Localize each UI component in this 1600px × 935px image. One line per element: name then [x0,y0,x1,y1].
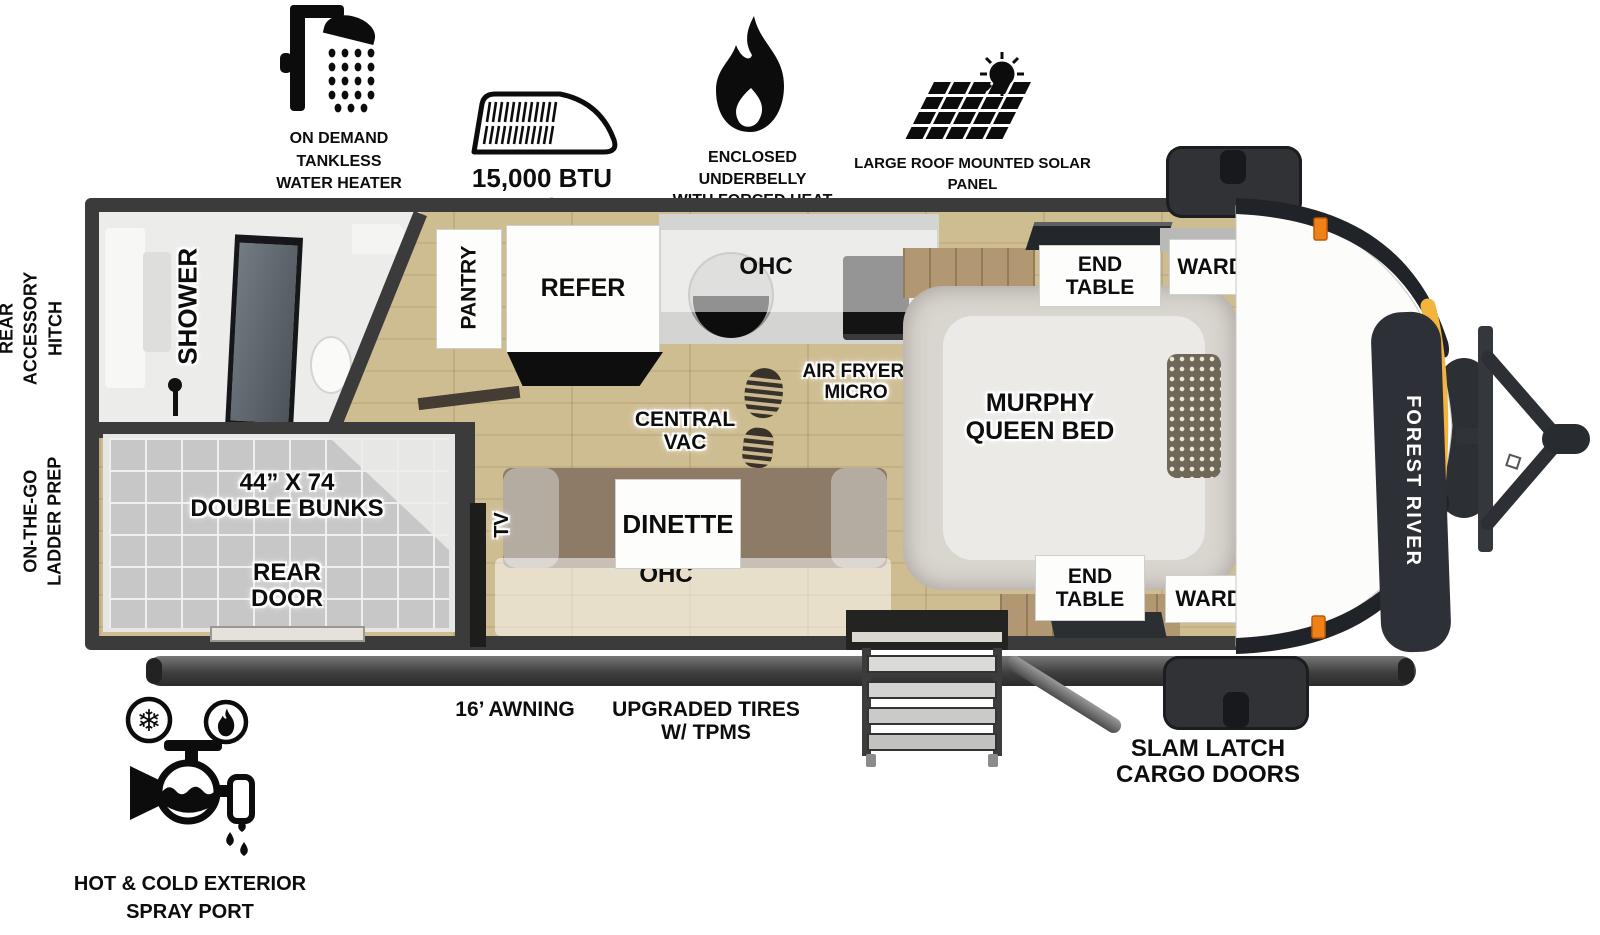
pantry-label: PANTRY [457,233,480,343]
rooftop-ac-icon [462,86,620,160]
front-cap-brand-text: FOREST RIVER [1398,316,1424,646]
refer-label: REFER [541,275,626,303]
bathroom-counter [105,228,145,388]
cargo-door-bottom-latch [1223,692,1249,728]
range-hood [507,352,663,386]
entry-threshold [852,632,1002,642]
floorplan-canvas: ON DEMAND TANKLESS WATER HEATER 15,000 B… [0,0,1600,935]
end-table-top: END TABLE [1040,246,1160,306]
tv [470,503,486,647]
entry-door-opening [846,610,1008,650]
shower-icon [278,3,390,115]
kitchen-ohc-label: OHC [726,254,806,280]
bathroom-cabinet [143,252,171,352]
double-bunks-label: 44” X 74 DOUBLE BUNKS [162,470,412,523]
solar-panel-icon [898,48,1038,150]
rear-door-label: REAR DOOR [212,560,362,613]
rear-door-opening [210,626,365,642]
end-table-top-label: END TABLE [1066,253,1134,299]
boot-print-icon [730,364,793,475]
flame-icon [708,14,796,140]
end-table-bottom-label: END TABLE [1056,565,1124,611]
cargo-door-top-latch [1220,150,1246,184]
end-table-bottom: END TABLE [1036,556,1144,620]
murphy-bed-bolster [1167,354,1221,478]
murphy-bed-label: MURPHY QUEEN BED [930,390,1150,445]
water-heater-label: ON DEMAND TANKLESS WATER HEATER [259,128,419,196]
spray-port-icon: ❄ [112,692,272,857]
awning-end-cap-left [146,658,162,684]
entry-steps [858,648,1006,768]
spray-port-label: HOT & COLD EXTERIOR SPRAY PORT [70,870,310,926]
dinette-table: DINETTE [616,480,740,568]
shower-fixture-stem [173,390,178,416]
tv-label: TV [491,495,513,555]
awning-label: 16’ AWNING [415,698,615,721]
front-cap [1228,190,1473,662]
shower-glass-panel [225,234,303,431]
shower-label: SHOWER [174,231,203,381]
refrigerator: REFER [507,226,659,352]
dinette-label: DINETTE [622,510,733,539]
tires-label: UPGRADED TIRES W/ TPMS [596,698,816,744]
rear-accessory-hitch-label: REAR ACCESSORY HITCH [0,248,67,408]
ladder-prep-label: ON-THE-GO LADDER PREP [19,436,68,606]
svg-text:❄: ❄ [136,704,161,739]
cargo-doors-label: SLAM LATCH CARGO DOORS [1083,736,1333,789]
dinette-armrest-right [831,468,887,568]
